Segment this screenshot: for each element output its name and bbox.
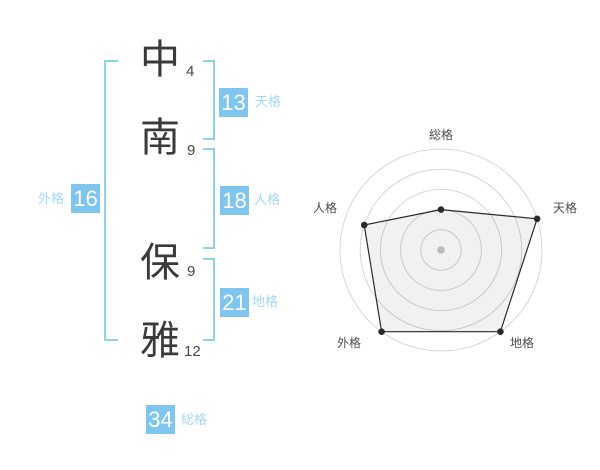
name-char-2: 南 (138, 118, 182, 158)
radar-axis-label: 総格 (429, 127, 453, 142)
stroke-count-1: 4 (186, 64, 194, 79)
soukaku-label: 総格 (181, 413, 207, 427)
tenkaku-label: 天格 (255, 95, 281, 109)
radar-center-dot (437, 246, 445, 254)
stroke-count-4: 12 (184, 344, 201, 359)
tenkaku-bracket (203, 60, 215, 140)
radar-axis-label: 天格 (553, 200, 577, 215)
tenkaku-value-badge: 13 (219, 88, 248, 117)
chikaku-label: 地格 (252, 295, 278, 309)
soukaku-value-badge: 34 (146, 405, 175, 434)
name-char-4: 雅 (138, 321, 182, 361)
chikaku-bracket (203, 258, 215, 341)
radar-axis-label: 地格 (510, 335, 534, 350)
radar-vertex-dot (534, 216, 541, 223)
radar-vertex-dot (438, 206, 445, 213)
chikaku-value-badge: 21 (220, 288, 249, 317)
jinkaku-bracket (203, 148, 215, 249)
name-char-1: 中 (138, 40, 182, 80)
name-char-3: 保 (138, 243, 182, 283)
radar-polygon (364, 210, 537, 332)
gaikaku-bracket (104, 60, 118, 341)
radar-vertex-dot (361, 222, 368, 229)
stroke-count-3: 9 (187, 264, 195, 279)
seimei-handan-result: 中 南 保 雅 4 9 9 12 13 天格 18 人格 21 地格 外格 16… (0, 0, 600, 470)
jinkaku-value-badge: 18 (220, 186, 249, 215)
stroke-count-2: 9 (187, 143, 195, 158)
radar-vertex-dot (378, 328, 385, 335)
kaku-radar-chart: 総格天格地格外格人格 (305, 115, 585, 360)
radar-axis-label: 人格 (313, 200, 337, 215)
gaikaku-value-badge: 16 (71, 184, 100, 213)
jinkaku-label: 人格 (254, 193, 280, 207)
gaikaku-label: 外格 (38, 192, 64, 206)
radar-vertex-dot (497, 328, 504, 335)
radar-axis-label: 外格 (337, 335, 361, 350)
